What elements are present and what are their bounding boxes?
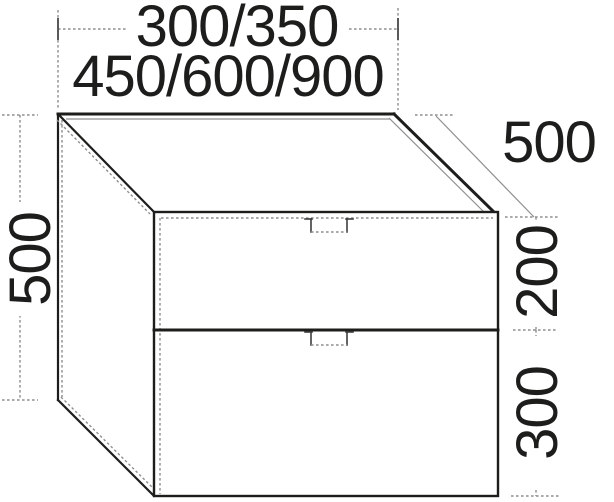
right-depth-edge [394,114,496,214]
left-top-depth-hidden [57,120,150,214]
cabinet-drawing [57,114,498,496]
upper-drawer-height-label: 200 [505,225,570,319]
dimension-lower-drawer-height: 300 [505,330,570,496]
right-depth-edge-inner [389,118,488,216]
dimension-width: 300/350 450/600/900 [58,0,398,110]
dimension-upper-drawer-height: 200 [505,217,570,330]
left-top-depth-edge [58,114,154,212]
dimension-height: 500 [0,115,63,400]
lower-drawer-height-label: 300 [505,366,570,460]
technical-drawing-canvas: 300/350 450/600/900 500 500 200 300 [0,0,614,502]
dimension-depth: 500 [415,110,596,217]
left-bottom-depth-hidden [61,397,156,491]
depth-label: 500 [502,110,596,175]
height-label: 500 [0,212,63,306]
front-face [154,212,498,496]
cabinet-dimension-drawing: 300/350 450/600/900 500 500 200 300 [0,0,614,502]
width-label-row2: 450/600/900 [72,44,384,109]
left-bottom-depth-edge [58,400,154,496]
